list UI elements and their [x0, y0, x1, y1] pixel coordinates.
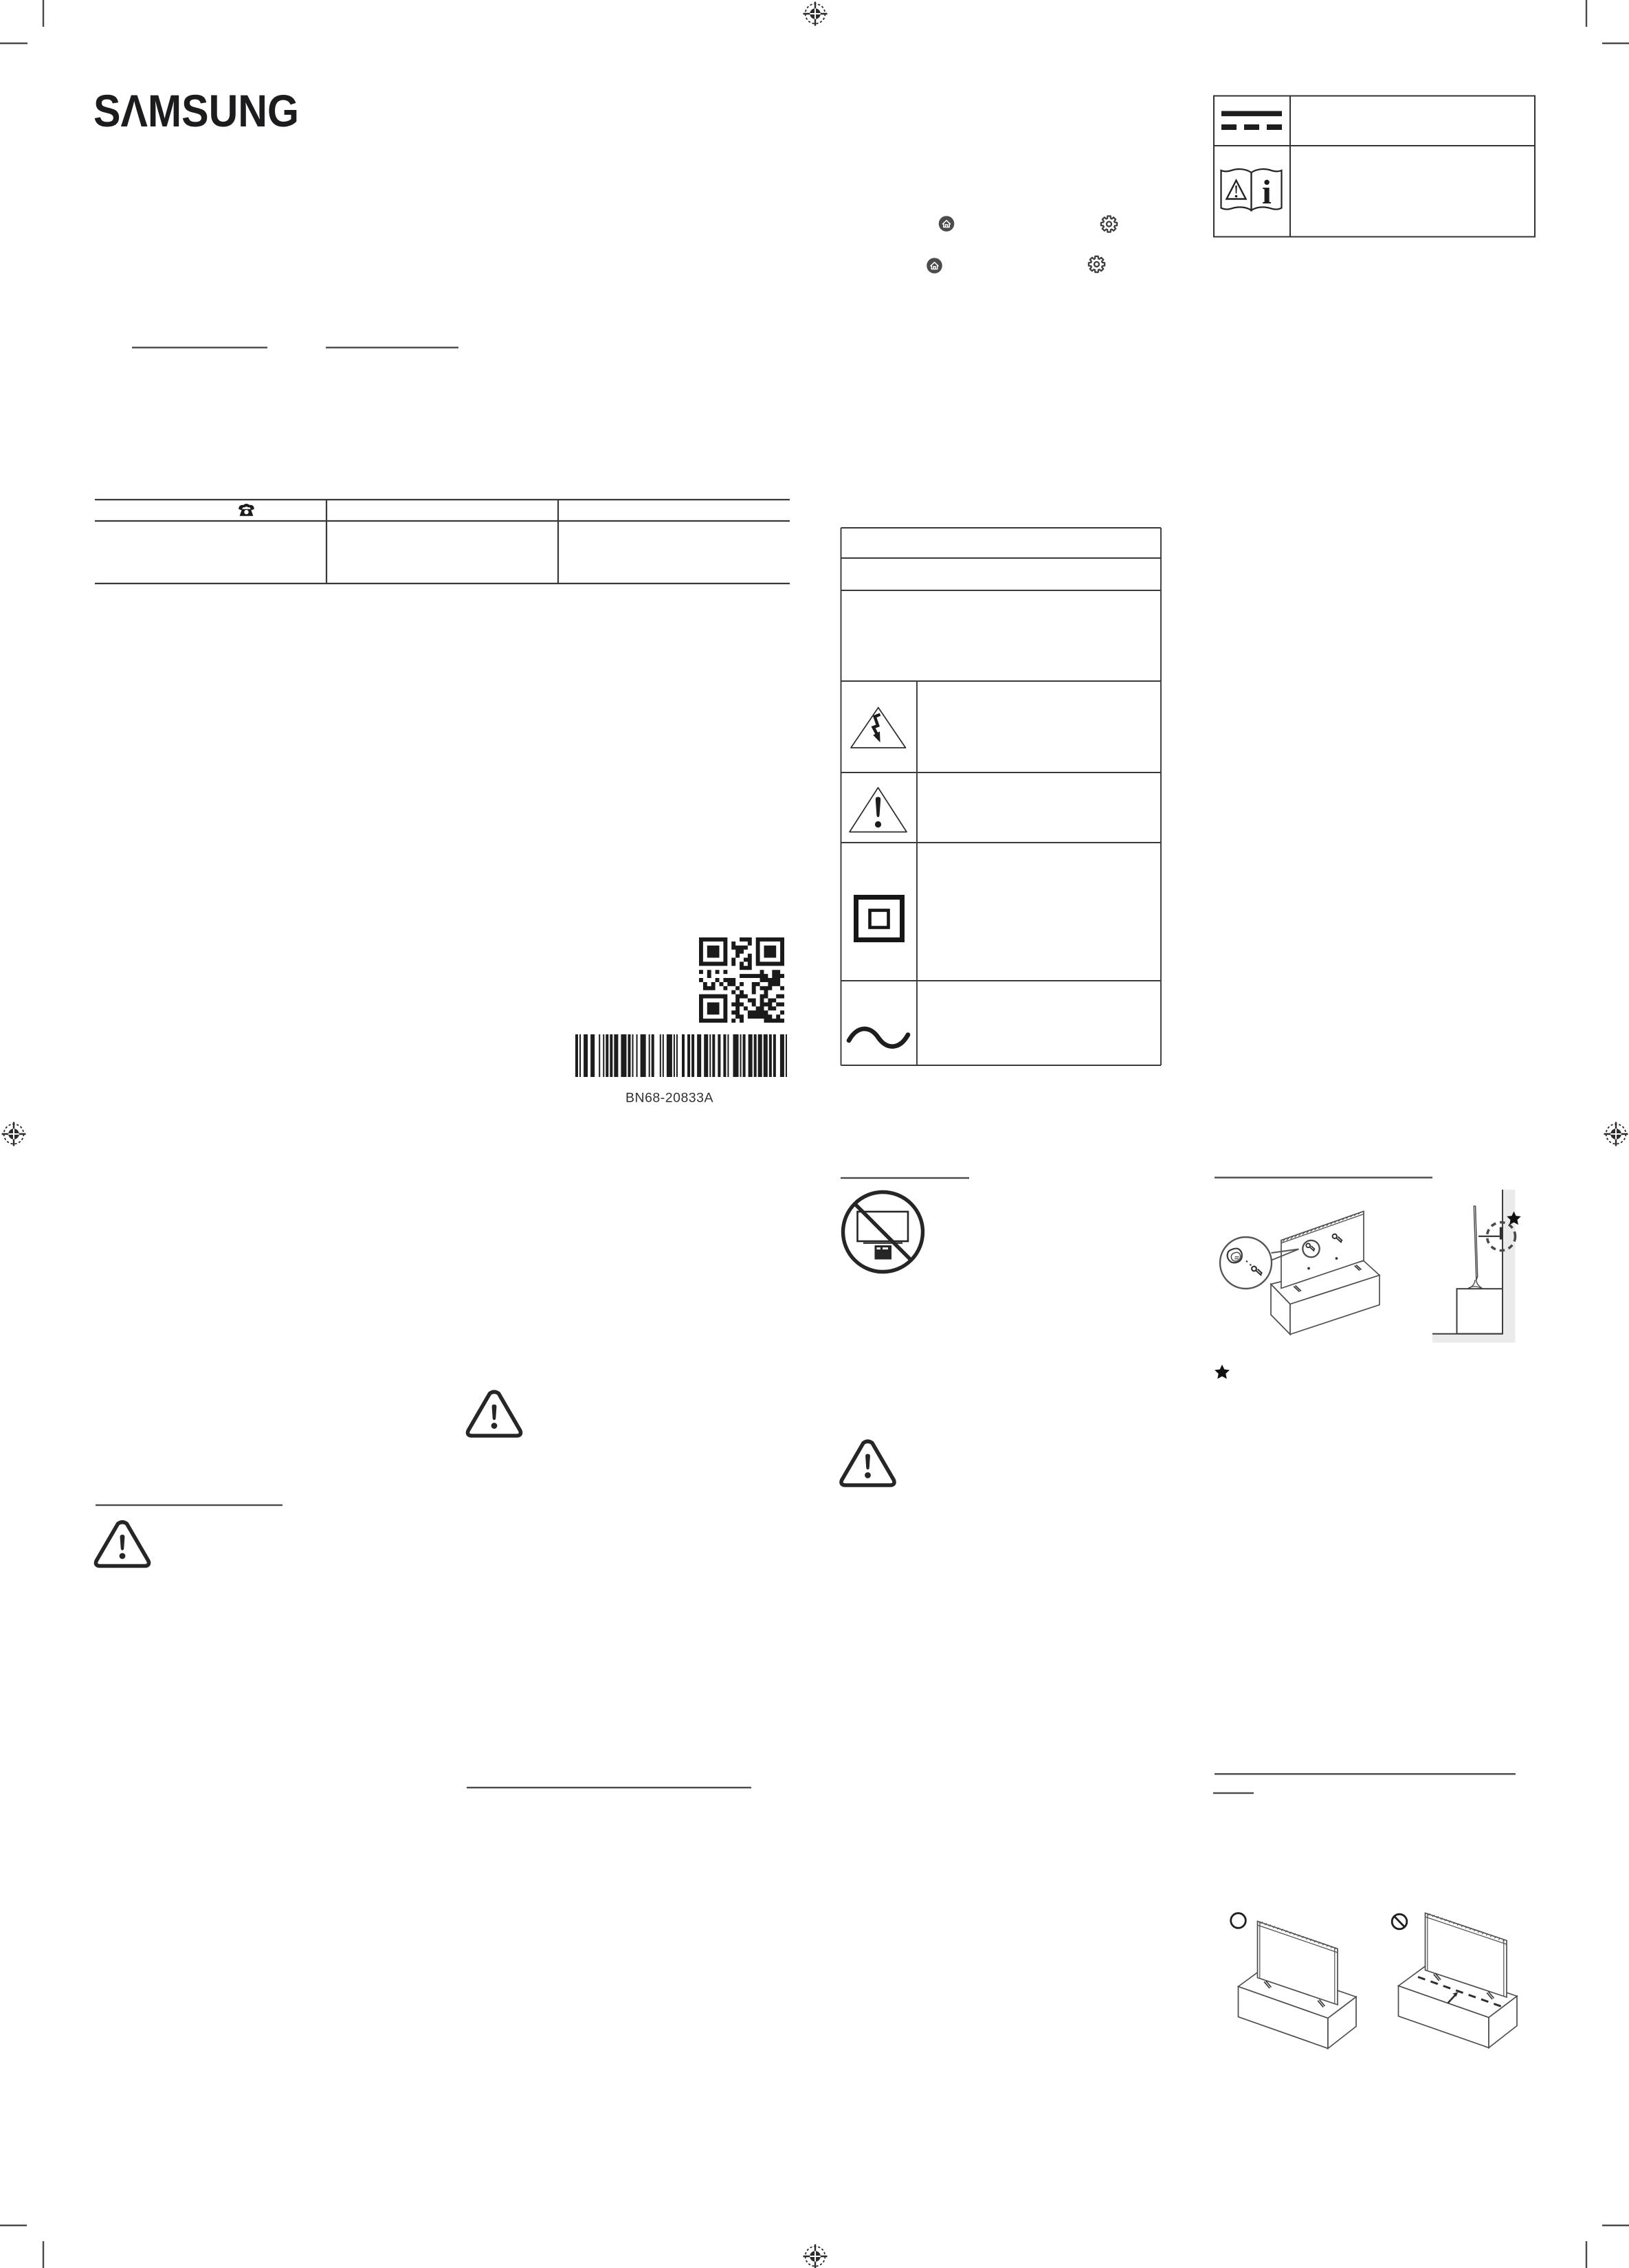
svg-text:SΛMSUNG: SΛMSUNG	[93, 85, 299, 136]
svg-text:i: i	[1262, 173, 1272, 211]
svg-text:BN68-20833A: BN68-20833A	[625, 1091, 713, 1106]
